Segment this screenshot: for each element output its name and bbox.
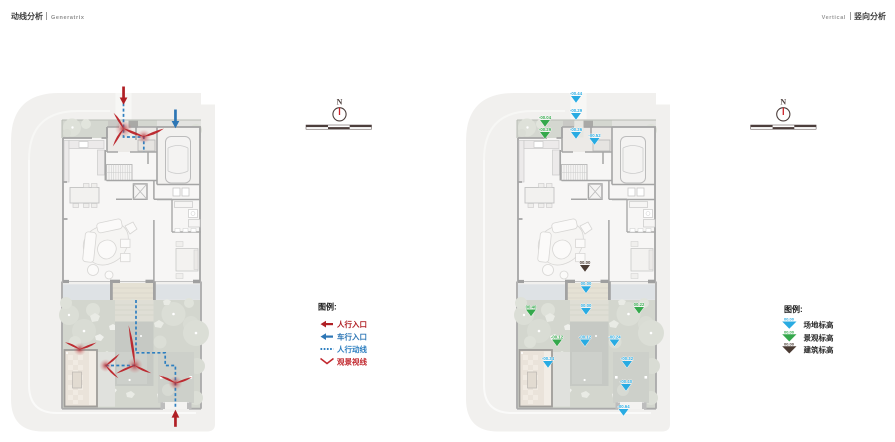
svg-text:-00.64: -00.64 [617,404,630,409]
svg-text:00.00: 00.00 [784,329,795,334]
svg-text:-00.44: -00.44 [570,91,583,96]
svg-text:00.40: 00.40 [526,304,537,309]
svg-text:-00.12: -00.12 [579,334,592,339]
svg-text:-00.04: -00.04 [539,115,552,120]
svg-text:人行动线: 人行动线 [337,344,367,354]
svg-text:景观标高: 景观标高 [804,333,834,343]
svg-text:图例:: 图例: [784,304,803,314]
svg-text:车行入口: 车行入口 [337,332,367,342]
svg-text:-00.29: -00.29 [570,108,583,113]
svg-text:00.22: 00.22 [634,302,645,307]
svg-text:人行入口: 人行入口 [337,319,367,329]
svg-text:图例:: 图例: [318,302,337,312]
svg-text:-00.34: -00.34 [542,356,555,361]
svg-text:-00.12: -00.12 [551,334,564,339]
svg-text:观景视线: 观景视线 [337,357,367,367]
svg-text:-00.32: -00.32 [621,356,634,361]
svg-text:00.00: 00.00 [581,303,592,308]
svg-text:-00.24: -00.24 [608,334,621,339]
svg-text:00.00: 00.00 [784,341,795,346]
svg-text:场地标高: 场地标高 [804,320,834,330]
svg-text:00.00: 00.00 [784,317,795,322]
svg-text:-00.40: -00.40 [620,379,633,384]
svg-text:-00.26: -00.26 [570,127,583,132]
svg-text:建筑标高: 建筑标高 [803,345,834,355]
svg-text:00.00: 00.00 [580,260,591,265]
svg-text:-00.29: -00.29 [539,127,552,132]
svg-text:-00.52: -00.52 [588,133,601,138]
svg-text:00.00: 00.00 [581,281,592,286]
